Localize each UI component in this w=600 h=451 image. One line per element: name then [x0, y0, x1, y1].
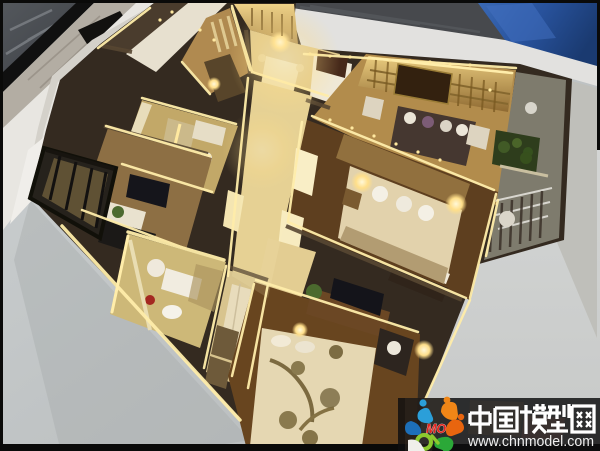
- svg-text:www.chnmodel.com: www.chnmodel.com: [467, 434, 594, 450]
- svg-text:MO: MO: [426, 422, 446, 436]
